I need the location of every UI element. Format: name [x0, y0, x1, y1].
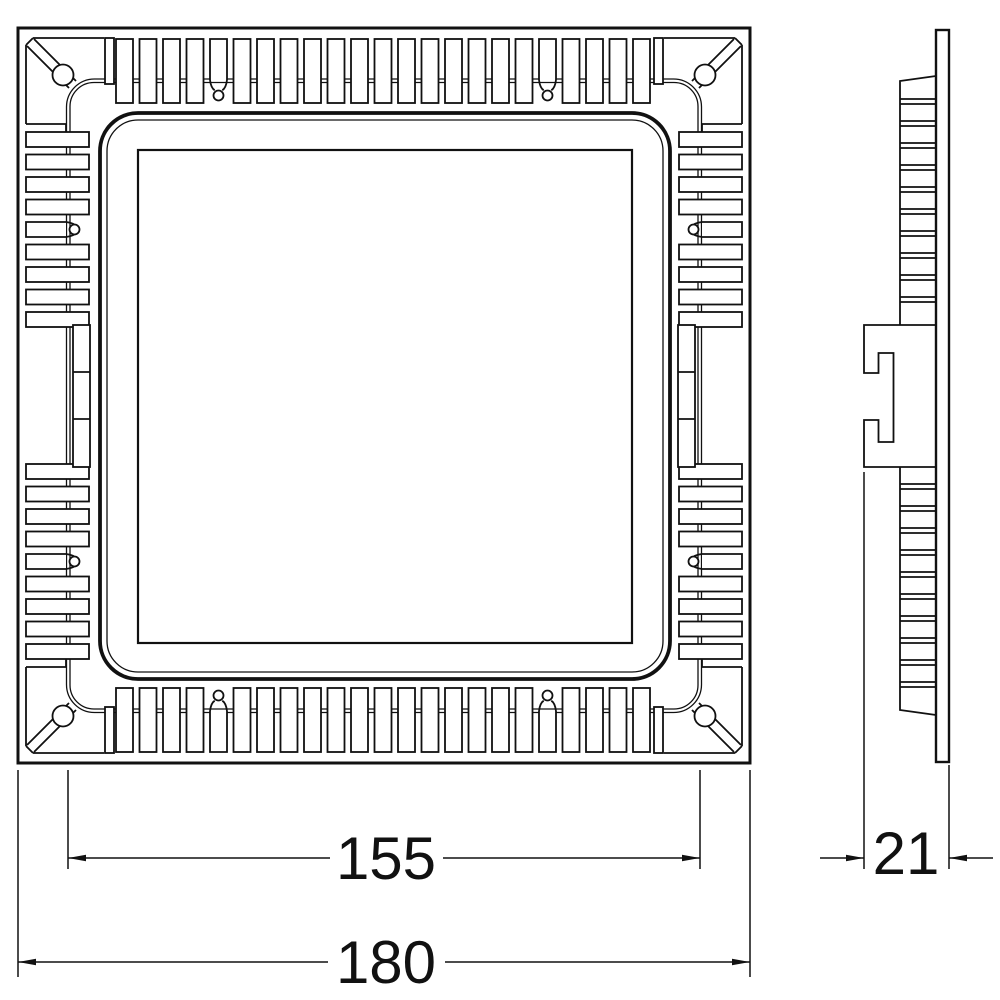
fin-slat	[140, 688, 157, 752]
fin-slat	[586, 688, 603, 752]
fin-slat	[26, 577, 89, 592]
fin-slat	[398, 39, 415, 103]
dimension-depth-21: 21	[820, 472, 993, 887]
fin-slat	[281, 39, 298, 103]
flange-inner-edge	[26, 38, 742, 753]
fin-slat	[679, 290, 742, 305]
body-outline-inner	[70, 83, 698, 710]
fin-slat	[654, 707, 663, 753]
fin-slat	[469, 688, 486, 752]
fin-slat	[26, 644, 89, 659]
fin-slat	[26, 177, 89, 192]
clip-slot-right	[678, 325, 695, 467]
fin-slat	[116, 39, 133, 103]
fin-slat	[702, 554, 742, 569]
fin-slat	[116, 688, 133, 752]
dim-180-label: 180	[336, 929, 436, 996]
fin-slat	[679, 532, 742, 547]
dim-21-arrow-right	[949, 855, 967, 861]
fin-slat	[26, 509, 89, 524]
fin-slat	[492, 39, 509, 103]
side-view	[864, 30, 949, 762]
fin-slat	[679, 177, 742, 192]
screw-hole	[70, 557, 80, 567]
fin-slat	[105, 707, 114, 753]
fin-slat	[234, 39, 251, 103]
fin-slat	[187, 688, 204, 752]
fin-slat	[679, 200, 742, 215]
fin-slat	[516, 688, 533, 752]
fin-slat	[26, 200, 89, 215]
dim-180-arrow-right	[732, 959, 750, 965]
fin-slat	[679, 132, 742, 147]
fin-slat	[679, 487, 742, 502]
screw-hole	[214, 91, 224, 101]
fin-slat	[586, 39, 603, 103]
fin-slat	[210, 39, 227, 80]
screw-hole	[543, 91, 553, 101]
fin-slat	[679, 267, 742, 282]
fin-slat	[26, 622, 89, 637]
fin-slat	[539, 711, 556, 752]
fin-slat	[679, 577, 742, 592]
panel-frame-outer	[100, 113, 670, 679]
panel-frame-inner	[107, 120, 663, 672]
fin-slat	[610, 39, 627, 103]
fin-slat	[304, 39, 321, 103]
fin-slat	[633, 39, 650, 103]
fin-slat	[516, 39, 533, 103]
fin-slat	[654, 38, 663, 84]
fin-slat	[351, 688, 368, 752]
body-outline-outer	[67, 79, 702, 713]
fin-slat	[26, 554, 66, 569]
fin-slat	[422, 688, 439, 752]
heatsink-fins-bottom	[105, 688, 663, 753]
screw-hole	[543, 691, 553, 701]
front-view	[18, 28, 750, 763]
fin-slat	[210, 711, 227, 752]
fin-slat	[281, 688, 298, 752]
fin-slat	[187, 39, 204, 103]
fin-slat	[163, 688, 180, 752]
technical-drawing: 155 180 21	[0, 0, 1000, 1000]
dimension-cutout-155: 155	[68, 770, 700, 892]
fin-slat	[257, 39, 274, 103]
fin-slat	[234, 688, 251, 752]
fin-slat	[679, 622, 742, 637]
fin-slat	[26, 132, 89, 147]
fin-slat	[26, 599, 89, 614]
fin-slat	[679, 599, 742, 614]
fin-slat	[492, 688, 509, 752]
fin-slat	[539, 39, 556, 80]
fin-slat	[469, 39, 486, 103]
dim-21-arrow-left	[846, 855, 864, 861]
fin-slat	[26, 290, 89, 305]
fin-slat	[679, 509, 742, 524]
fin-slat	[610, 688, 627, 752]
fin-notch	[539, 80, 556, 90]
fin-slat	[375, 688, 392, 752]
fin-slat	[679, 155, 742, 170]
corner-boss-top-right	[692, 39, 741, 88]
dim-155-label: 155	[336, 825, 436, 892]
heatsink-fins-top	[105, 38, 663, 103]
dim-180-arrow-left	[18, 959, 36, 965]
corner-boss-top-left	[27, 39, 76, 88]
fin-slat	[422, 39, 439, 103]
fin-slat	[26, 487, 89, 502]
fin-slat	[26, 155, 89, 170]
fin-slat	[26, 267, 89, 282]
screw-hole	[689, 557, 699, 567]
dim-155-arrow-left	[68, 855, 86, 861]
flange-outline	[18, 28, 750, 763]
drawing-page: 155 180 21	[0, 0, 1000, 1000]
fin-notch	[210, 80, 227, 90]
fin-slat	[679, 644, 742, 659]
fin-slat	[304, 688, 321, 752]
fin-slat	[398, 688, 415, 752]
dim-155-arrow-right	[682, 855, 700, 861]
side-flange-plate	[936, 30, 949, 762]
fin-slat	[26, 222, 66, 237]
fin-slat	[140, 39, 157, 103]
fin-slat	[445, 688, 462, 752]
fin-slat	[105, 38, 114, 84]
clip-slot-left	[73, 325, 90, 467]
screw-hole	[214, 691, 224, 701]
fin-slat	[563, 688, 580, 752]
fin-slat	[633, 688, 650, 752]
dim-21-label: 21	[873, 820, 940, 887]
side-clip-bracket	[864, 325, 936, 467]
fin-slat	[26, 532, 89, 547]
fin-slat	[351, 39, 368, 103]
fin-slat	[702, 222, 742, 237]
screw-hole	[689, 225, 699, 235]
fin-slat	[26, 245, 89, 260]
corner-boss-bottom-right	[692, 703, 741, 752]
screw-hole	[70, 225, 80, 235]
fin-slat	[257, 688, 274, 752]
fin-slat	[679, 245, 742, 260]
fin-slat	[328, 688, 345, 752]
corner-boss-bottom-left	[27, 703, 76, 752]
light-aperture	[138, 150, 632, 643]
fin-slat	[375, 39, 392, 103]
fin-slat	[563, 39, 580, 103]
fin-slat	[328, 39, 345, 103]
fin-slat	[445, 39, 462, 103]
fin-slat	[163, 39, 180, 103]
